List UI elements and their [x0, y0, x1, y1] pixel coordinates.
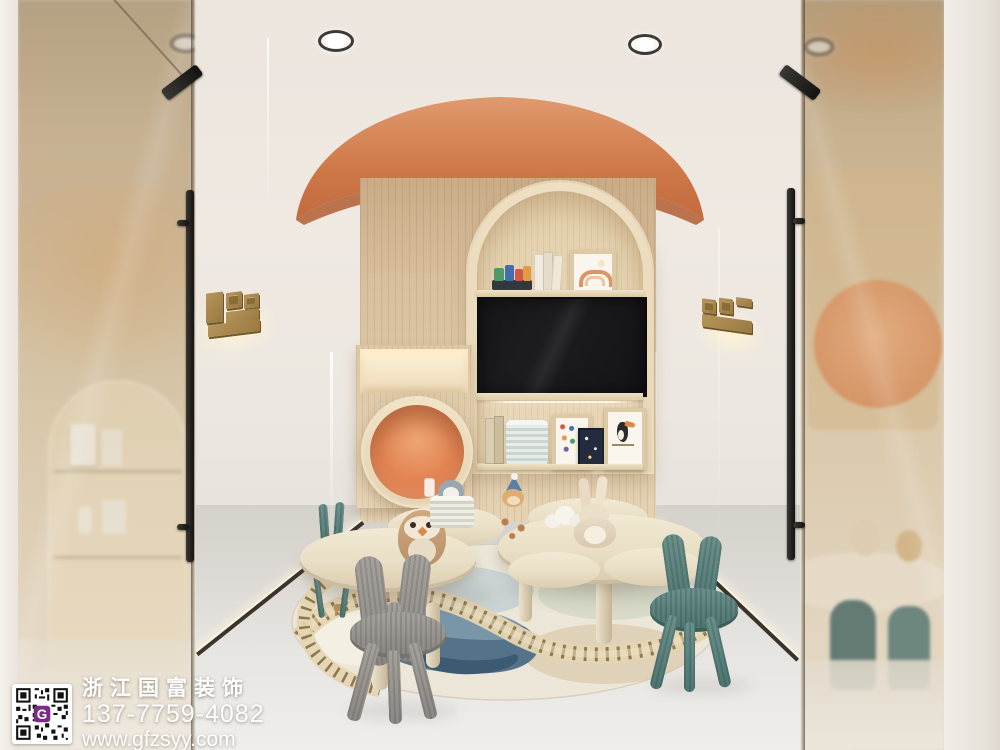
toy-basket-with-plush: [422, 476, 478, 526]
handle-mount: [177, 524, 189, 530]
pod-alcove: [360, 349, 468, 393]
books: [534, 252, 562, 292]
watermark: G 浙江国富装饰 137-7759-4082 www.gfzsyy.com: [12, 678, 265, 750]
downlight-icon: [628, 34, 662, 55]
sign-engraving: [229, 295, 238, 305]
glass-edge: [800, 0, 805, 750]
niche-shelf: [477, 290, 643, 297]
hat-pompom: [511, 473, 518, 480]
wall-light-seam: [267, 38, 269, 206]
handle-mount: [793, 218, 805, 224]
plush-bunny: [568, 478, 620, 548]
chair-leg: [649, 614, 679, 691]
basket: [430, 496, 474, 528]
toucan-art-chest: [618, 430, 624, 440]
toucan-picture-frame: [604, 408, 646, 470]
corner-light-seam: [655, 352, 657, 520]
niche-bottom-board: [477, 464, 643, 470]
toy-blocks: [490, 260, 534, 292]
sun-dot: [598, 260, 605, 267]
handle-mount: [793, 522, 805, 528]
rainbow-art-inner: [585, 276, 605, 286]
door-handle-left: [186, 190, 194, 562]
website-url: www.gfzsyy.com: [82, 729, 265, 750]
toucan-art-branch: [612, 444, 634, 446]
sign-plate: [206, 291, 223, 323]
plush-giraffe: [492, 476, 536, 546]
door-handle-right: [787, 188, 795, 560]
chair-leg: [346, 642, 380, 723]
book-spine: [551, 255, 564, 295]
alphabet-art: [559, 422, 577, 454]
milk-bottle: [424, 478, 435, 497]
sign-engraving: [722, 301, 730, 311]
downlight-icon: [318, 30, 354, 52]
book-spine: [494, 416, 504, 464]
qr-logo-letter: G: [37, 707, 47, 722]
sign-plate: [736, 297, 752, 307]
kids-table-lobe: [508, 552, 600, 588]
right-wall-sign: [696, 287, 762, 358]
glass-shine: [18, 0, 196, 750]
phone-number: 137-7759-4082: [82, 702, 265, 727]
playroom-render: G 浙江国富装饰 137-7759-4082 www.gfzsyy.com: [0, 0, 1000, 750]
bunny-belly: [584, 526, 606, 544]
glass-shine: [800, 0, 944, 750]
shelf-led-strip: [480, 401, 640, 403]
owl-eye: [410, 522, 416, 528]
glass-door-right: [800, 0, 944, 750]
sign-engraving: [705, 302, 713, 311]
chair-leg: [704, 616, 732, 689]
company-name: 浙江国富装饰: [82, 678, 265, 699]
toy-block: [505, 265, 514, 281]
sign-engraving: [247, 297, 255, 305]
chair-leg: [387, 650, 403, 724]
chair-seat: [650, 588, 738, 628]
books: [485, 416, 503, 462]
left-wall-sign: [198, 277, 272, 358]
watermark-qr-icon: G: [12, 684, 72, 744]
giraffe-muzzle: [507, 496, 520, 505]
toy-block: [494, 268, 504, 281]
bunny-chair-gray: [346, 550, 450, 728]
giraffe-body: [496, 504, 532, 544]
tv-screen: [477, 297, 647, 397]
woven-basket: [506, 420, 548, 467]
arched-niche: [468, 182, 652, 472]
right-wall-strip: [944, 0, 1000, 750]
niche-shelf: [477, 393, 643, 400]
chair-leg: [684, 622, 695, 692]
toy-block: [515, 269, 523, 281]
left-wall-strip: [0, 0, 18, 750]
chair-leg: [407, 642, 438, 721]
navy-picture-frame: [578, 428, 604, 466]
bunny-chair-teal-right: [646, 528, 742, 694]
chair-leg: [313, 574, 325, 618]
wall-light-seam: [718, 228, 720, 558]
toy-block: [523, 266, 531, 281]
toy-block: [492, 280, 532, 290]
glass-door-left: [18, 0, 196, 750]
handle-mount: [177, 220, 189, 226]
